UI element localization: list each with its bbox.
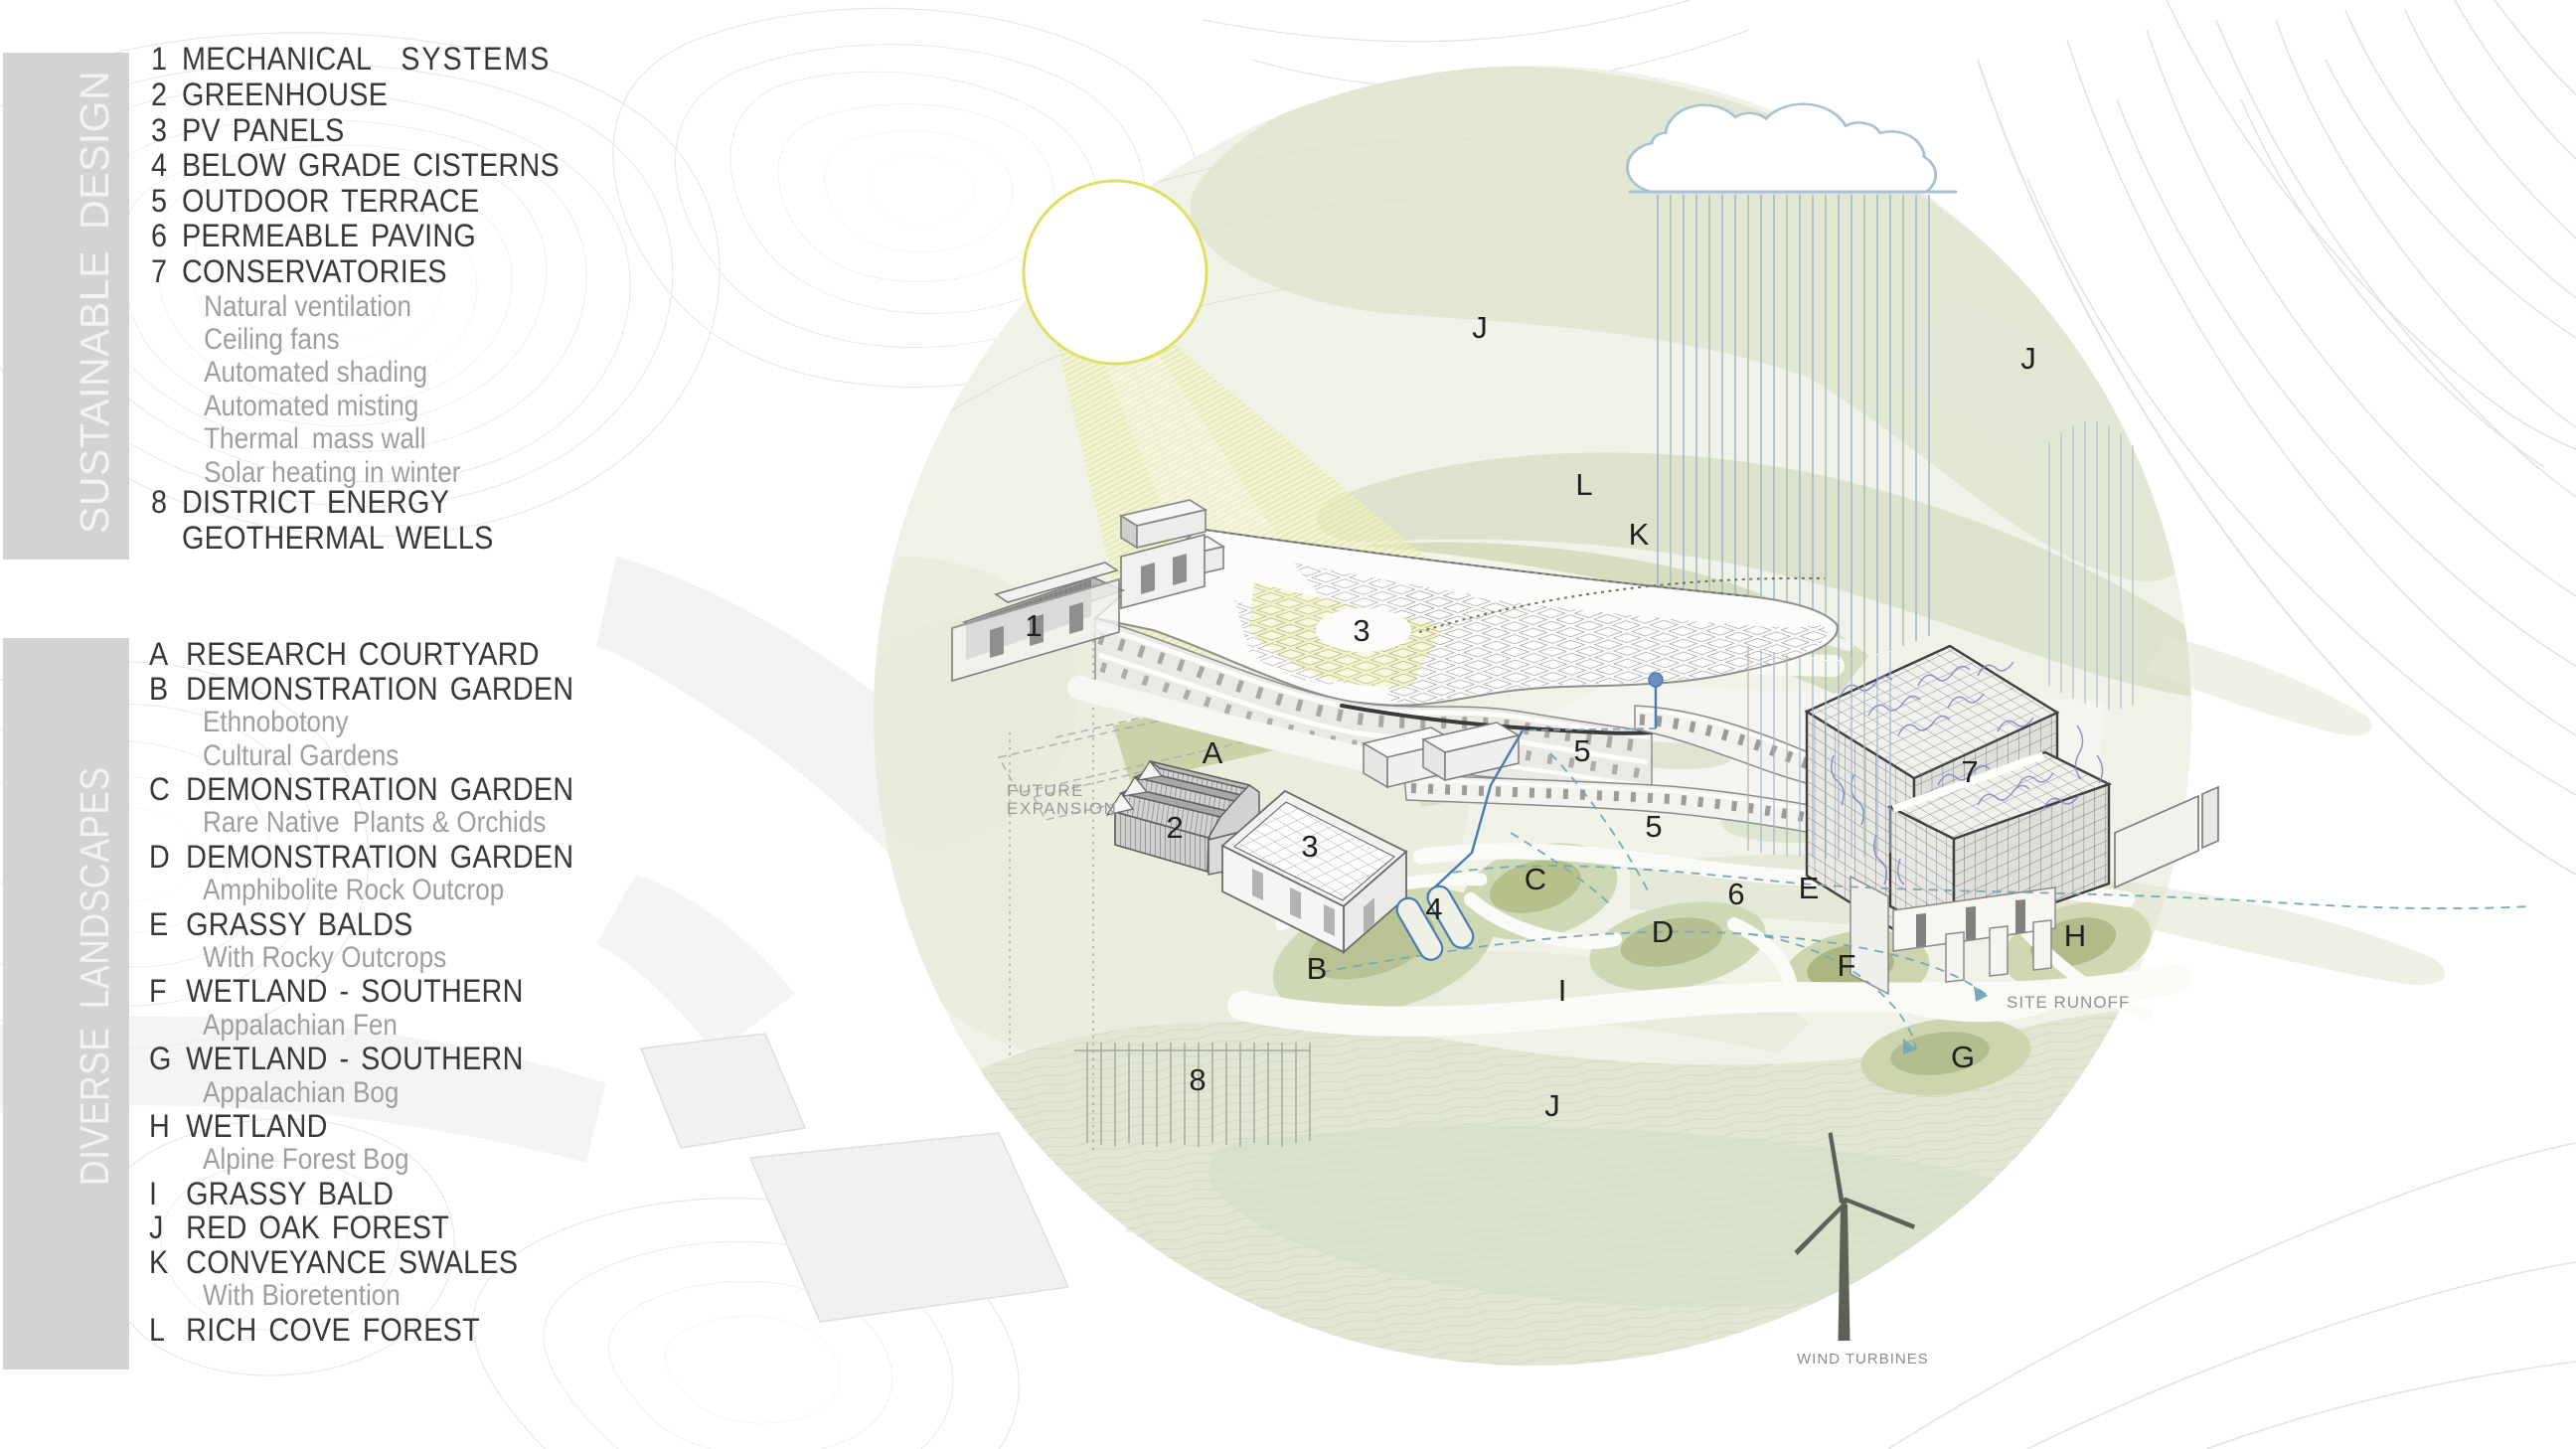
svg-text:J: J bbox=[1544, 1088, 1560, 1123]
svg-text:4: 4 bbox=[1425, 891, 1442, 926]
svg-text:5: 5 bbox=[1573, 733, 1590, 768]
svg-text:G: G bbox=[1951, 1040, 1975, 1074]
svg-text:I: I bbox=[1558, 973, 1567, 1008]
svg-text:WIND TURBINES: WIND TURBINES bbox=[1797, 1351, 1929, 1368]
svg-text:SITE RUNOFF: SITE RUNOFF bbox=[2007, 993, 2130, 1012]
svg-text:1: 1 bbox=[1025, 608, 1042, 643]
svg-text:D: D bbox=[1652, 914, 1674, 949]
svg-text:EXPANSION: EXPANSION bbox=[1007, 799, 1117, 818]
svg-text:K: K bbox=[1629, 517, 1650, 552]
svg-text:8: 8 bbox=[1189, 1062, 1206, 1097]
svg-text:3: 3 bbox=[1353, 613, 1369, 648]
svg-text:FUTURE: FUTURE bbox=[1007, 781, 1084, 800]
svg-text:H: H bbox=[2064, 918, 2086, 953]
svg-text:F: F bbox=[1838, 948, 1856, 983]
svg-text:5: 5 bbox=[1645, 809, 1662, 844]
svg-text:B: B bbox=[1307, 951, 1328, 986]
svg-text:A: A bbox=[1203, 735, 1223, 770]
svg-text:6: 6 bbox=[1727, 877, 1744, 911]
svg-text:C: C bbox=[1525, 862, 1546, 896]
svg-text:2: 2 bbox=[1166, 810, 1183, 845]
svg-text:3: 3 bbox=[1301, 829, 1318, 864]
svg-text:L: L bbox=[1575, 467, 1592, 502]
svg-text:J: J bbox=[2020, 341, 2036, 376]
svg-text:7: 7 bbox=[1961, 754, 1978, 789]
svg-text:E: E bbox=[1799, 871, 1820, 905]
svg-text:J: J bbox=[1472, 310, 1488, 345]
